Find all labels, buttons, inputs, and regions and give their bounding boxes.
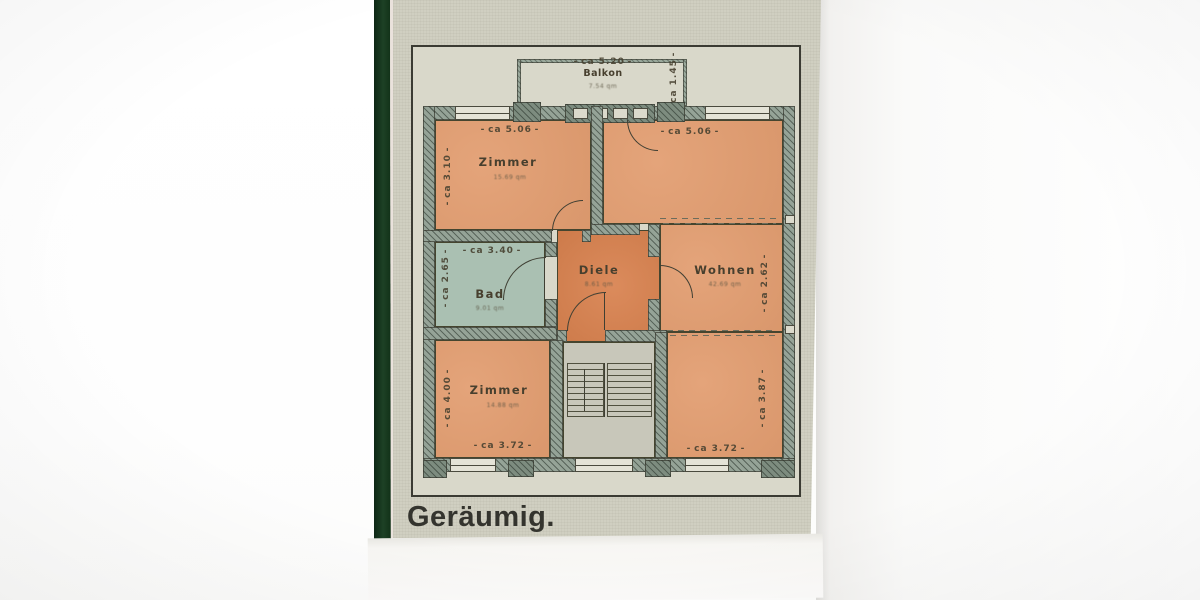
window-bottom-sw — [450, 458, 496, 472]
dim-balkon-width: ca 5.20 — [543, 57, 663, 67]
dark-green-strip — [374, 0, 391, 545]
floor-plan: ca 5.20 Balkon 7.54 qm ca 1.45 — [413, 47, 799, 495]
dim-bad-height: ca 2.65 — [441, 243, 451, 313]
area-wohnen: 42.69 qm — [665, 281, 785, 288]
headline-geraeumig: Geräumig. — [407, 501, 555, 534]
pillar-bottom-4 — [761, 460, 795, 478]
wall-bad-diele-lower — [545, 299, 557, 327]
window-bottom-se — [685, 458, 729, 472]
wall-junction-notch — [785, 325, 795, 334]
wall-diele-wohnen-upper — [648, 224, 660, 257]
balcony-door-pane — [613, 108, 628, 119]
wall-zimmer-nw-bottom-stub — [582, 230, 591, 242]
room-label-zimmer-nw: Zimmer — [448, 155, 568, 169]
dim-wohnen-se-height: ca 3.87 — [758, 363, 768, 433]
dim-zimmer-sw-width: ca 3.72 — [443, 441, 563, 451]
wall-zimmer-nw-bottom — [423, 230, 552, 242]
newspaper-clipping: ca 5.20 Balkon 7.54 qm ca 1.45 — [390, 0, 821, 538]
balcony-wall-left — [517, 59, 521, 106]
window-bottom-stairwell — [575, 458, 633, 472]
wall-diele-wohnen-lower — [648, 299, 660, 332]
floor-plan-frame: ca 5.20 Balkon 7.54 qm ca 1.45 — [411, 45, 801, 497]
pillar-balcony-right — [657, 102, 685, 122]
pillar-bottom-2 — [508, 460, 534, 477]
area-diele: 8.61 qm — [539, 281, 659, 288]
balcony-door-pane — [573, 108, 588, 119]
white-background-left — [0, 0, 374, 600]
wall-exterior-right — [783, 106, 795, 472]
room-label-zimmer-sw: Zimmer — [439, 383, 559, 397]
wall-zimmer-nw-wohnen — [591, 106, 603, 230]
area-zimmer-sw: 14.88 qm — [443, 402, 563, 409]
photo-of-newspaper-floor-plan: ca 5.20 Balkon 7.54 qm ca 1.45 — [0, 0, 1200, 600]
stairs-flight-left — [567, 363, 604, 417]
pillar-bottom-3 — [645, 460, 671, 477]
dim-wohnen-se-width: ca 3.72 — [656, 444, 776, 454]
stairs-flight-right — [607, 363, 652, 417]
window-top-right — [705, 106, 770, 120]
room-label-balkon: Balkon — [543, 68, 663, 79]
balcony-door-pane — [633, 108, 648, 119]
stairs-direction-arrow — [584, 369, 585, 411]
pillar-bottom-1 — [423, 460, 447, 478]
dim-wohnen-ne-width: ca 5.06 — [630, 127, 750, 137]
white-paper-right — [816, 0, 1200, 600]
pillar-balcony-left — [513, 102, 541, 122]
window-top-left — [455, 106, 510, 120]
balcony-wall-right — [683, 59, 687, 106]
room-label-diele: Diele — [539, 263, 659, 277]
area-balkon: 7.54 qm — [543, 83, 663, 90]
wall-junction-notch — [785, 215, 795, 224]
room-label-wohnen: Wohnen — [665, 263, 785, 277]
dim-zimmer-sw-height: ca 4.00 — [443, 363, 453, 433]
area-zimmer-nw: 15.69 qm — [450, 174, 570, 181]
door-leaf-entrance — [604, 292, 605, 330]
dim-zimmer-nw-width: ca 5.06 — [450, 125, 570, 135]
dashed-boundary-wohnen-se — [667, 330, 777, 336]
white-paper-bottom — [368, 534, 824, 600]
room-label-bad: Bad — [430, 287, 550, 301]
stairs-divider — [604, 363, 605, 417]
area-bad: 9.01 qm — [430, 305, 550, 312]
dashed-boundary-wohnen-ne — [660, 218, 776, 224]
wall-diele-top — [591, 224, 640, 235]
wall-bad-zimmer-sw — [423, 327, 557, 340]
wall-stairwell-wohnen-se — [655, 332, 667, 458]
